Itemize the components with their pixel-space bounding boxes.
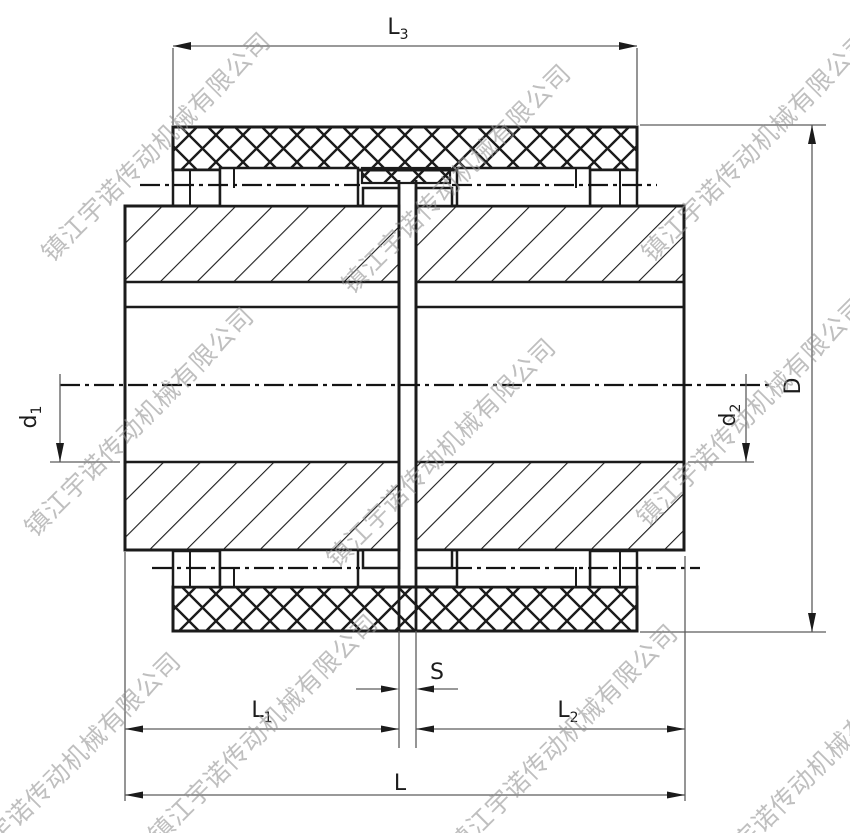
left-hub — [125, 168, 399, 587]
l-right-arrowhead — [667, 792, 685, 799]
l1-right-arrowhead — [381, 726, 399, 733]
gear-coupling-section-drawing: L3 D d1 d2 S L1 L2 L — [0, 0, 850, 833]
right-hub-hatch-upper — [416, 206, 684, 282]
label-d2: d2 — [716, 404, 744, 427]
label-L1: L1 — [251, 698, 272, 726]
sleeve-bottom-band — [173, 587, 637, 631]
right-hub-hatch-lower — [416, 462, 684, 550]
l1-left-arrowhead — [125, 726, 143, 733]
left-hub-hatch-lower — [125, 462, 399, 550]
label-L: L — [394, 771, 407, 796]
coupling-drawing-canvas: L3 D d1 d2 S L1 L2 L 镇江宇诺传动机械有限公司 镇江宇诺传动… — [0, 0, 850, 833]
left-hub-shoulder-top — [363, 188, 399, 206]
label-D: D — [781, 378, 806, 395]
l3-left-arrowhead — [173, 42, 191, 50]
l-left-arrowhead — [125, 792, 143, 799]
d2-arrowhead — [742, 443, 750, 462]
sleeve-right-end-wall — [590, 170, 637, 206]
label-S: S — [430, 660, 444, 685]
left-hub-shoulder-bottom — [363, 550, 399, 568]
l2-left-arrowhead — [416, 726, 434, 733]
sleeve-left-end-wall — [173, 170, 220, 206]
l3-right-arrowhead — [619, 42, 637, 50]
d-bottom-arrowhead — [808, 613, 816, 632]
s-right-arrowhead — [416, 686, 434, 693]
right-hub-shoulder-top — [416, 188, 452, 206]
left-hub-tooth-crown-top — [220, 168, 358, 206]
d1-arrowhead — [56, 443, 64, 462]
l2-right-arrowhead — [667, 726, 685, 733]
label-d1: d1 — [17, 406, 45, 429]
sleeve-center-rib — [362, 168, 450, 183]
s-left-arrowhead — [381, 686, 399, 693]
right-hub-tooth-crown-top — [457, 168, 590, 206]
left-hub-hatch-upper — [125, 206, 399, 282]
sleeve-top-band — [173, 127, 637, 170]
right-hub — [416, 168, 684, 587]
hub-gap — [399, 180, 416, 631]
d-top-arrowhead — [808, 125, 816, 144]
right-hub-shoulder-bottom — [416, 550, 452, 568]
label-L3: L3 — [387, 15, 408, 43]
label-L2: L2 — [557, 698, 578, 726]
